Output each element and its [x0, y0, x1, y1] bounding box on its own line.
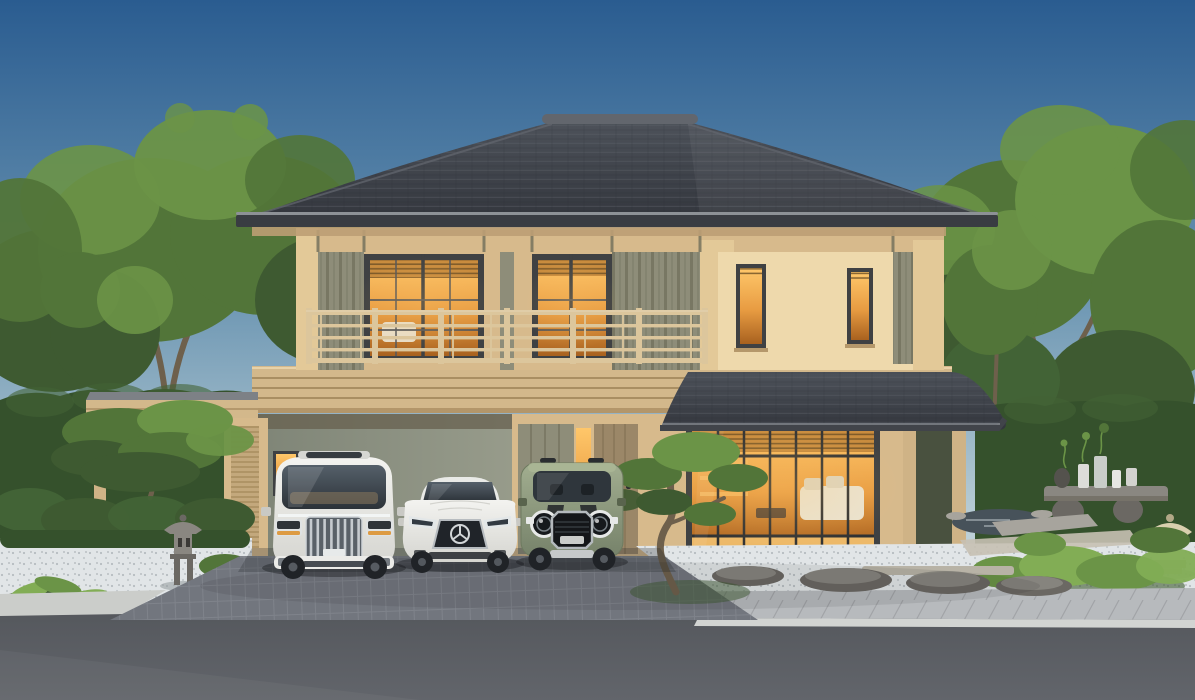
car-suv-green: [516, 458, 628, 571]
ceramic-jar: [1054, 468, 1070, 488]
minivan-plate: [323, 549, 345, 556]
wing-window-1: [734, 264, 768, 352]
roof-rail-right: [588, 458, 604, 463]
white-vase: [1078, 464, 1089, 488]
suv-skid-plate: [550, 550, 594, 558]
minivan-headlight-right: [366, 519, 393, 536]
car-minivan: [261, 451, 407, 579]
gutter: [236, 212, 998, 215]
porch-post-rear: [903, 414, 916, 552]
porch-post-front: [952, 410, 966, 554]
corner-pilaster-right: [913, 240, 944, 370]
porch-roof: [660, 372, 1006, 430]
minivan-mirror-left: [261, 507, 271, 516]
suv-plate: [560, 536, 584, 544]
suv-mirror-right: [617, 498, 626, 506]
wing-window-2: [845, 268, 875, 348]
minivan-headlight-left: [275, 519, 302, 536]
scene-svg: [0, 0, 1195, 700]
suv-grille: [552, 512, 592, 548]
eave-fascia: [236, 215, 998, 227]
rendered-image: Front elevation of a modern two-storey J…: [0, 0, 1195, 700]
ridge-cap: [542, 114, 698, 124]
batten-strip-right: [893, 252, 913, 364]
roof-rail-left: [540, 458, 556, 463]
tall-vase: [1094, 456, 1107, 488]
second-floor: [296, 228, 944, 370]
suv-mirror-left: [518, 498, 527, 506]
sedan-grille: [433, 520, 487, 548]
minivan-sunroof: [306, 452, 362, 458]
